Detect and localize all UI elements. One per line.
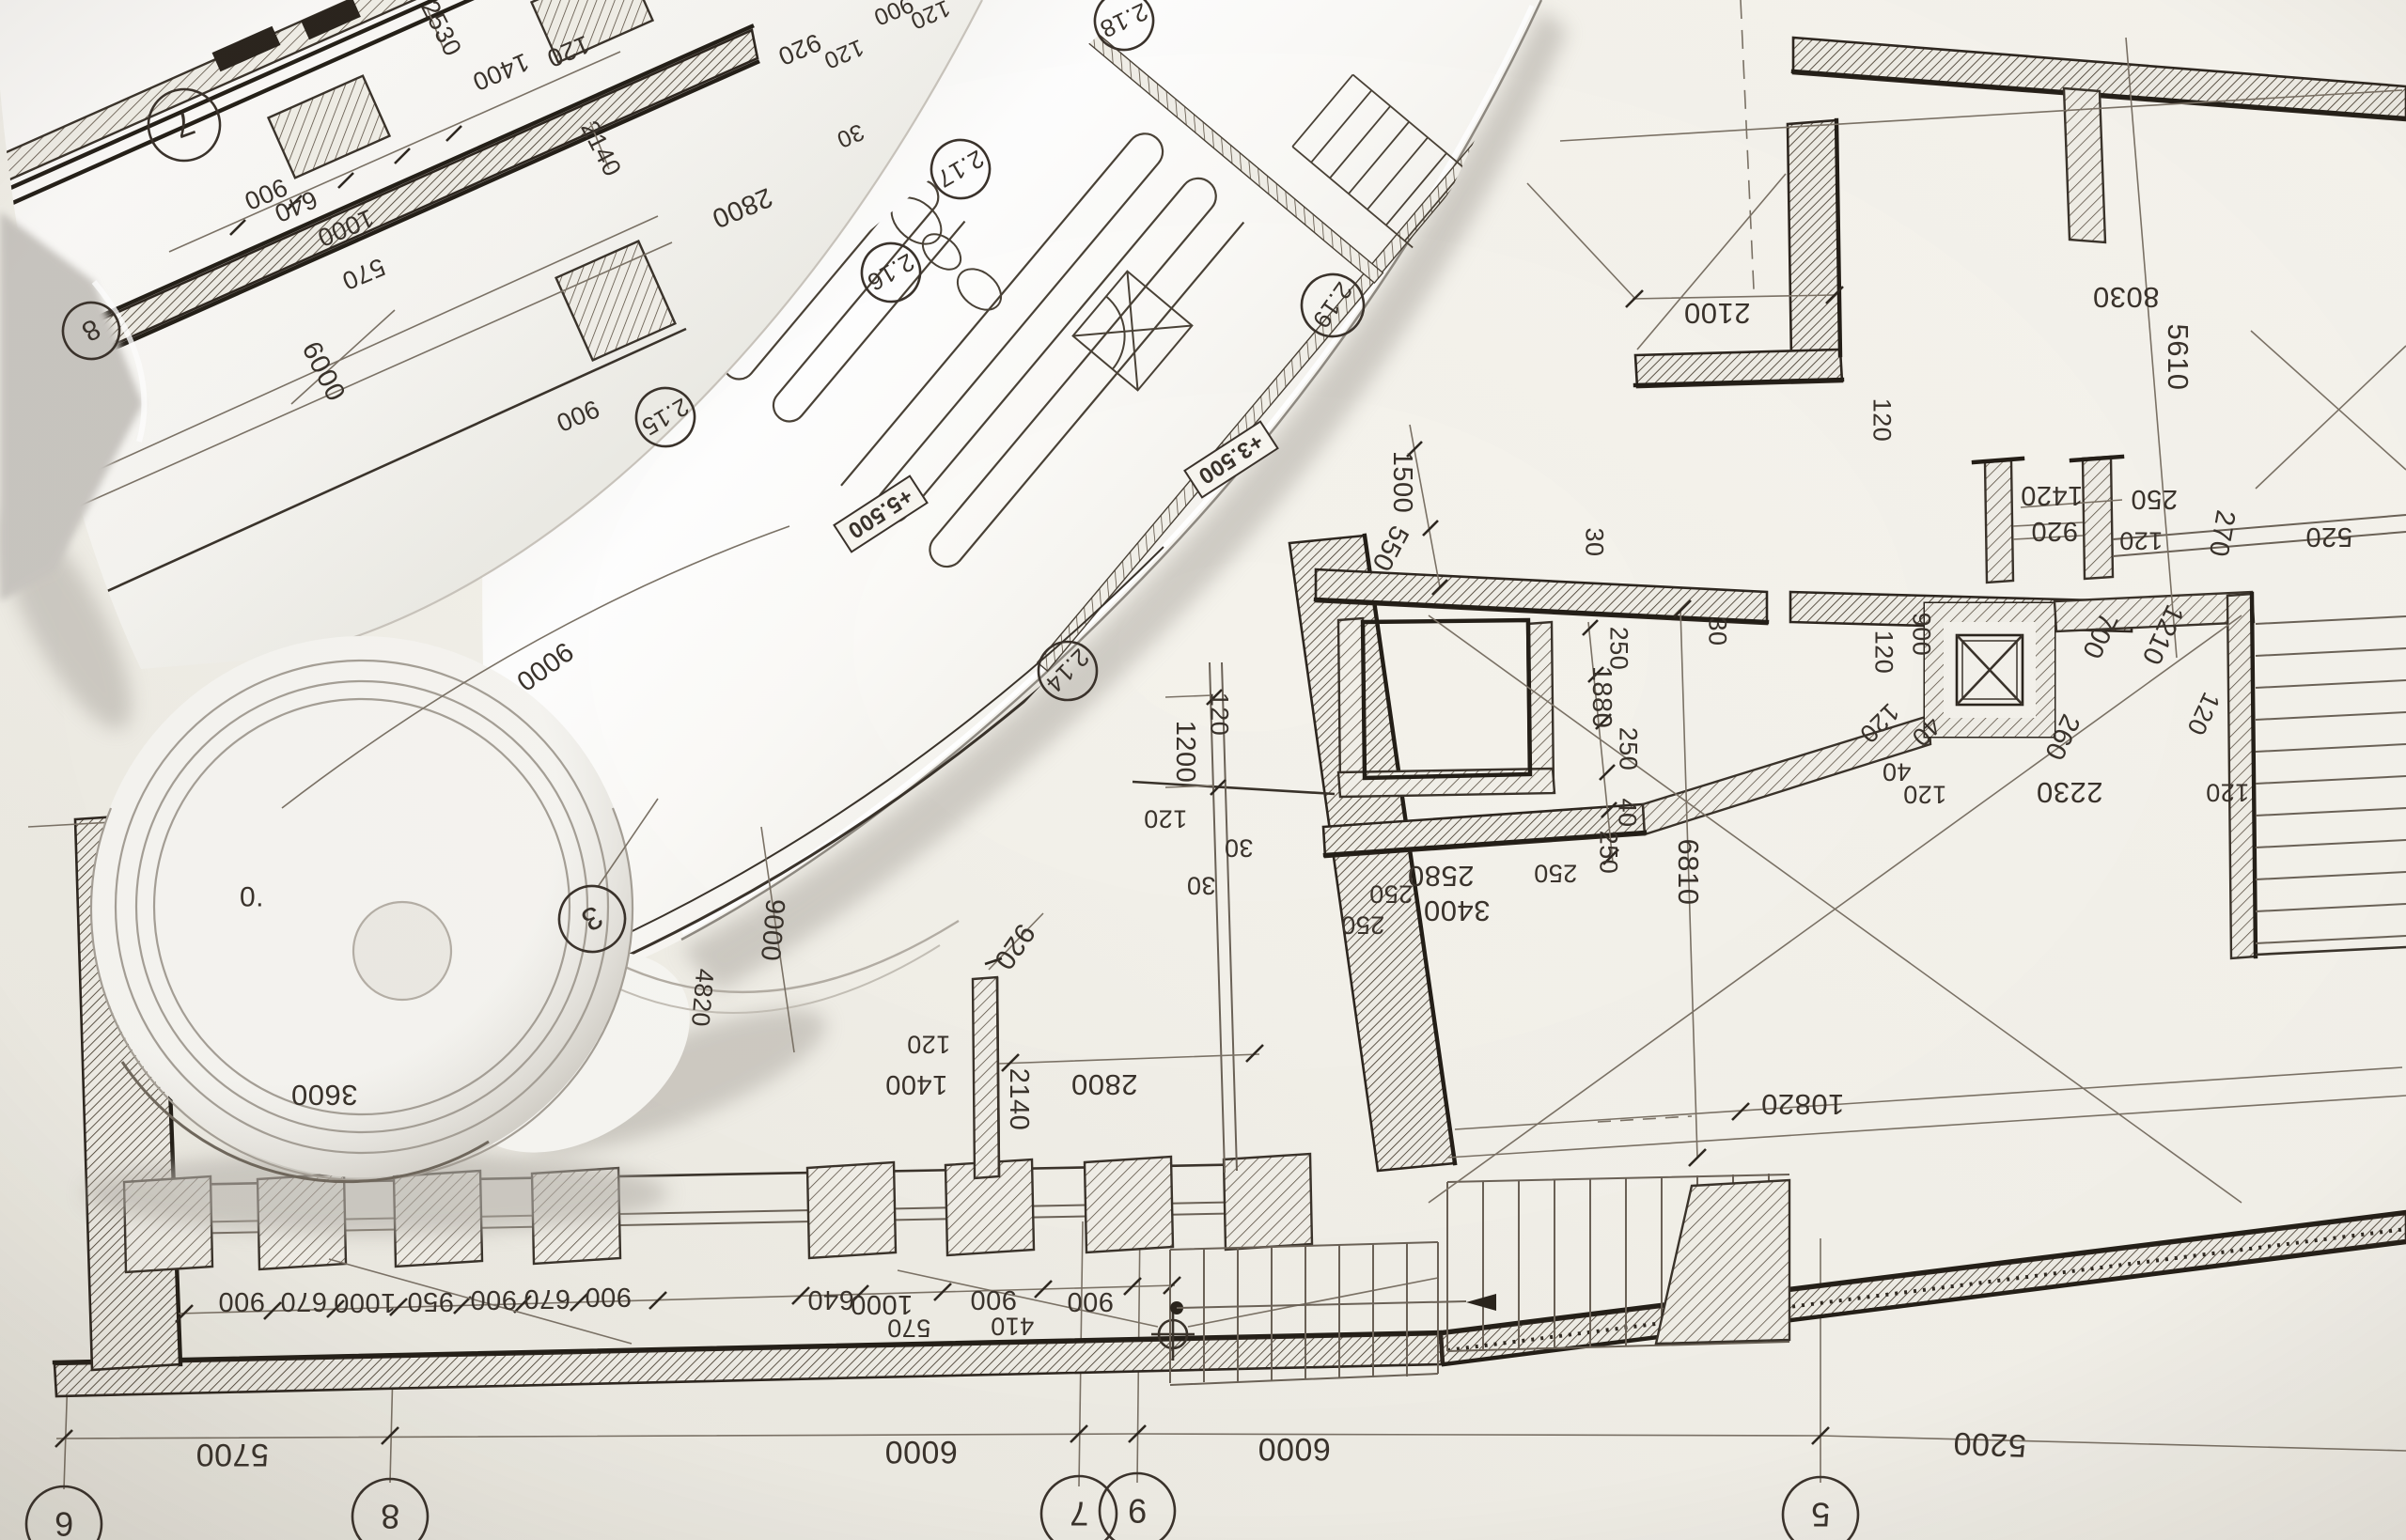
svg-text:2100: 2100 — [1684, 297, 1751, 330]
svg-text:5700: 5700 — [195, 1437, 269, 1472]
svg-text:250: 250 — [2131, 484, 2178, 514]
svg-text:520: 520 — [2305, 521, 2352, 552]
dimension-label: 2100 — [1684, 297, 1751, 330]
dimension-label: 30 — [1704, 616, 1732, 646]
dimension-label: 6810 — [1672, 839, 1705, 906]
svg-text:250: 250 — [1595, 831, 1623, 875]
dimension-label: 250 — [1615, 727, 1643, 771]
svg-text:30: 30 — [1186, 872, 1215, 900]
svg-text:640: 640 — [807, 1284, 854, 1314]
dimension-label: 120 — [1870, 630, 1898, 675]
dimension-label: 120 — [2206, 779, 2250, 807]
dimension-label: 0. — [240, 882, 264, 913]
svg-text:250: 250 — [1534, 860, 1578, 888]
dimension-label: 2230 — [2037, 776, 2103, 809]
svg-text:30: 30 — [1224, 834, 1253, 863]
svg-text:3400: 3400 — [1424, 894, 1491, 927]
dimension-label: 5610 — [2162, 324, 2195, 391]
dimension-label: 570 — [887, 1314, 931, 1343]
svg-text:2580: 2580 — [1408, 860, 1475, 893]
svg-text:3600: 3600 — [291, 1079, 358, 1112]
dimension-label: 4820 — [686, 968, 719, 1028]
svg-text:6810: 6810 — [1672, 839, 1705, 906]
dimension-label: 920 — [2031, 516, 2078, 546]
dimension-label: 900 — [970, 1284, 1017, 1314]
svg-text:6000: 6000 — [1258, 1431, 1331, 1467]
svg-text:7: 7 — [1070, 1494, 1089, 1532]
photo-blueprints: Photograph: rolled architectural bluepri… — [0, 0, 2406, 1540]
svg-text:120: 120 — [1206, 692, 1234, 737]
dimension-label: 5200 — [1953, 1425, 2027, 1464]
dimension-label: 250 — [1369, 880, 1414, 909]
blueprint-scene: 5700600060005200900670100095090067090064… — [0, 0, 2406, 1540]
svg-text:250: 250 — [1605, 627, 1633, 671]
svg-text:1420: 1420 — [2021, 480, 2084, 510]
dimension-label: 1500 — [1387, 451, 1417, 514]
dimension-label: 670 — [280, 1286, 327, 1316]
dimension-label: 900 — [470, 1284, 517, 1314]
svg-text:1500: 1500 — [1387, 451, 1417, 514]
svg-text:9: 9 — [1128, 1491, 1148, 1530]
dimension-label: 250 — [1595, 831, 1623, 875]
svg-text:40: 40 — [1614, 798, 1642, 827]
dimension-label: 6000 — [1258, 1431, 1331, 1467]
svg-text:1200: 1200 — [1170, 721, 1200, 784]
dimension-label: 900 — [1067, 1286, 1114, 1316]
dimension-label: 250 — [1605, 627, 1633, 671]
dimension-label: 520 — [2305, 521, 2352, 552]
dimension-label: 900 — [585, 1282, 632, 1312]
svg-text:250: 250 — [1369, 880, 1414, 909]
dimension-label: 1420 — [2021, 480, 2084, 510]
dimension-label: 120 — [1903, 781, 1947, 809]
svg-text:900: 900 — [1067, 1286, 1114, 1316]
svg-text:1000: 1000 — [334, 1287, 397, 1317]
svg-text:900: 900 — [1908, 613, 1936, 657]
svg-text:2140: 2140 — [1004, 1068, 1034, 1131]
dimension-label: 9000 — [755, 897, 790, 962]
dimension-label: 2140 — [1004, 1068, 1034, 1131]
dimension-label: 410 — [991, 1313, 1035, 1341]
dimension-label: 3400 — [1424, 894, 1491, 927]
dimension-label: 30 — [1581, 527, 1609, 556]
svg-text:410: 410 — [991, 1313, 1035, 1341]
svg-text:120: 120 — [1870, 630, 1898, 675]
dimension-label: 8030 — [2093, 281, 2160, 314]
dimension-label: 1880 — [1586, 666, 1617, 729]
dimension-label: 120 — [1206, 692, 1234, 737]
svg-text:1400: 1400 — [885, 1069, 948, 1099]
svg-text:8030: 8030 — [2093, 281, 2160, 314]
svg-text:30: 30 — [1581, 527, 1609, 556]
dimension-label: 120 — [907, 1031, 951, 1059]
dimension-label: 250 — [1534, 860, 1578, 888]
svg-text:8: 8 — [381, 1497, 400, 1535]
svg-text:6000: 6000 — [884, 1434, 958, 1470]
svg-text:120: 120 — [2206, 779, 2250, 807]
svg-text:5610: 5610 — [2162, 324, 2195, 391]
dimension-label: 10820 — [1761, 1088, 1845, 1121]
svg-text:9000: 9000 — [755, 897, 790, 962]
svg-text:670: 670 — [523, 1283, 570, 1314]
dimension-label: 3600 — [291, 1079, 358, 1112]
svg-text:950: 950 — [407, 1286, 454, 1316]
svg-text:6: 6 — [55, 1504, 74, 1540]
svg-text:900: 900 — [470, 1284, 517, 1314]
svg-text:920: 920 — [2031, 516, 2078, 546]
svg-text:120: 120 — [1868, 398, 1897, 443]
svg-text:5: 5 — [1811, 1495, 1831, 1533]
svg-text:670: 670 — [280, 1286, 327, 1316]
svg-text:250: 250 — [1341, 911, 1385, 940]
svg-text:4820: 4820 — [686, 968, 719, 1028]
svg-text:1880: 1880 — [1586, 666, 1617, 729]
dimension-label: 1200 — [1170, 721, 1200, 784]
dimension-label: 2800 — [1071, 1068, 1138, 1101]
svg-text:2800: 2800 — [1071, 1068, 1138, 1101]
dimension-label: 2580 — [1408, 860, 1475, 893]
dimension-label: 900 — [218, 1286, 265, 1316]
svg-text:5200: 5200 — [1953, 1425, 2027, 1464]
svg-text:250: 250 — [1615, 727, 1643, 771]
dimension-label: 900 — [1908, 613, 1936, 657]
svg-text:120: 120 — [1144, 805, 1188, 833]
svg-text:120: 120 — [2119, 527, 2164, 555]
svg-text:900: 900 — [218, 1286, 265, 1316]
svg-text:570: 570 — [887, 1314, 931, 1343]
dimension-label: 950 — [407, 1286, 454, 1316]
dimension-label: 6000 — [884, 1434, 958, 1470]
dimension-label: 30 — [1224, 834, 1253, 863]
svg-text:120: 120 — [1903, 781, 1947, 809]
dimension-label: 120 — [1868, 398, 1897, 443]
svg-text:120: 120 — [907, 1031, 951, 1059]
svg-text:0.: 0. — [240, 882, 264, 913]
svg-text:30: 30 — [1704, 616, 1732, 646]
dimension-label: 250 — [2131, 484, 2178, 514]
svg-text:2230: 2230 — [2037, 776, 2103, 809]
dimension-label: 120 — [2119, 527, 2164, 555]
dimension-label: 640 — [807, 1284, 854, 1314]
svg-text:900: 900 — [585, 1282, 632, 1312]
dimension-label: 250 — [1341, 911, 1385, 940]
dimension-label: 40 — [1614, 798, 1642, 827]
svg-text:10820: 10820 — [1761, 1088, 1845, 1121]
svg-text:900: 900 — [970, 1284, 1017, 1314]
dimension-label: 1400 — [885, 1069, 948, 1099]
dimension-label: 1000 — [334, 1287, 397, 1317]
dimension-label: 5700 — [195, 1437, 269, 1472]
dimension-label: 670 — [523, 1283, 570, 1314]
dimension-label: 120 — [1144, 805, 1188, 833]
dimension-label: 30 — [1186, 872, 1215, 900]
